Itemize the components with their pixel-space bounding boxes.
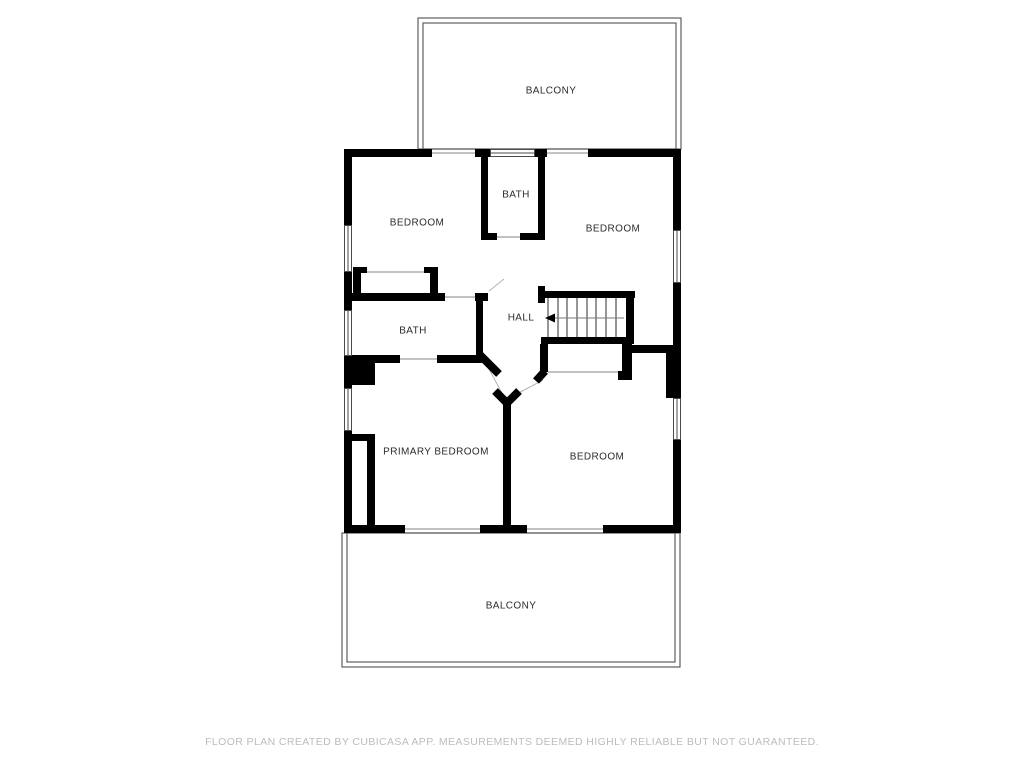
wall-segment-diagonal	[536, 371, 545, 381]
wall-segment	[503, 399, 511, 526]
wall-segment	[481, 149, 488, 233]
wall-segment	[673, 440, 681, 533]
room-label-bath-top: BATH	[502, 190, 530, 201]
wall-segment	[480, 525, 527, 533]
floor-plan-drawing	[0, 0, 1023, 767]
room-label-balcony-bottom: BALCONY	[486, 601, 537, 612]
wall-segment	[476, 293, 483, 355]
room-label-hall: HALL	[508, 313, 535, 324]
wall-segment-diagonal	[507, 391, 519, 403]
wall-segment	[344, 272, 352, 310]
wall-segment	[538, 149, 545, 233]
wall-segment	[622, 344, 632, 374]
balcony-outline-inner	[347, 533, 675, 662]
chimney-block	[345, 363, 375, 385]
wall-segment	[541, 337, 634, 344]
staircase	[545, 298, 624, 337]
wall-segment	[538, 291, 635, 298]
interior-walls	[344, 149, 674, 526]
wall-segment	[344, 149, 432, 157]
wall-segment	[618, 371, 632, 380]
wall-segment	[540, 344, 548, 372]
floor-plan-canvas: BALCONY BEDROOM BATH BEDROOM BATH HALL P…	[0, 0, 1023, 767]
door-swing-line	[489, 279, 504, 291]
wall-segment	[344, 149, 352, 225]
wall-segment	[520, 233, 545, 240]
wall-segment	[437, 355, 483, 363]
wall-segment-diagonal	[480, 355, 499, 374]
balcony-outline-outer	[418, 18, 681, 149]
wall-segment	[367, 434, 375, 526]
room-label-balcony-top: BALCONY	[526, 86, 577, 97]
wall-segment	[603, 525, 681, 533]
wall-segment	[673, 149, 681, 230]
wall-segment	[666, 352, 674, 398]
wall-segment	[344, 431, 352, 533]
wall-segment	[344, 525, 405, 533]
wall-segment	[632, 345, 674, 353]
wall-segment	[626, 291, 634, 344]
closet-post	[424, 267, 438, 273]
wall-segment	[673, 283, 681, 398]
wall-segment	[344, 355, 400, 363]
stair-direction-arrow-icon	[545, 314, 555, 323]
disclaimer-text: FLOOR PLAN CREATED BY CUBICASA APP. MEAS…	[205, 736, 819, 748]
room-label-bedroom-top-left: BEDROOM	[390, 218, 444, 229]
room-label-bath-middle: BATH	[399, 326, 427, 337]
wall-segment	[588, 149, 681, 157]
wall-segment	[481, 233, 497, 240]
room-label-bedroom-top-right: BEDROOM	[586, 224, 640, 235]
balcony-top-outline	[418, 18, 681, 149]
room-label-primary-bedroom: PRIMARY BEDROOM	[383, 447, 489, 458]
closet-post	[353, 267, 367, 273]
angled-walls	[480, 355, 545, 403]
room-label-bedroom-bottom-right: BEDROOM	[570, 452, 624, 463]
